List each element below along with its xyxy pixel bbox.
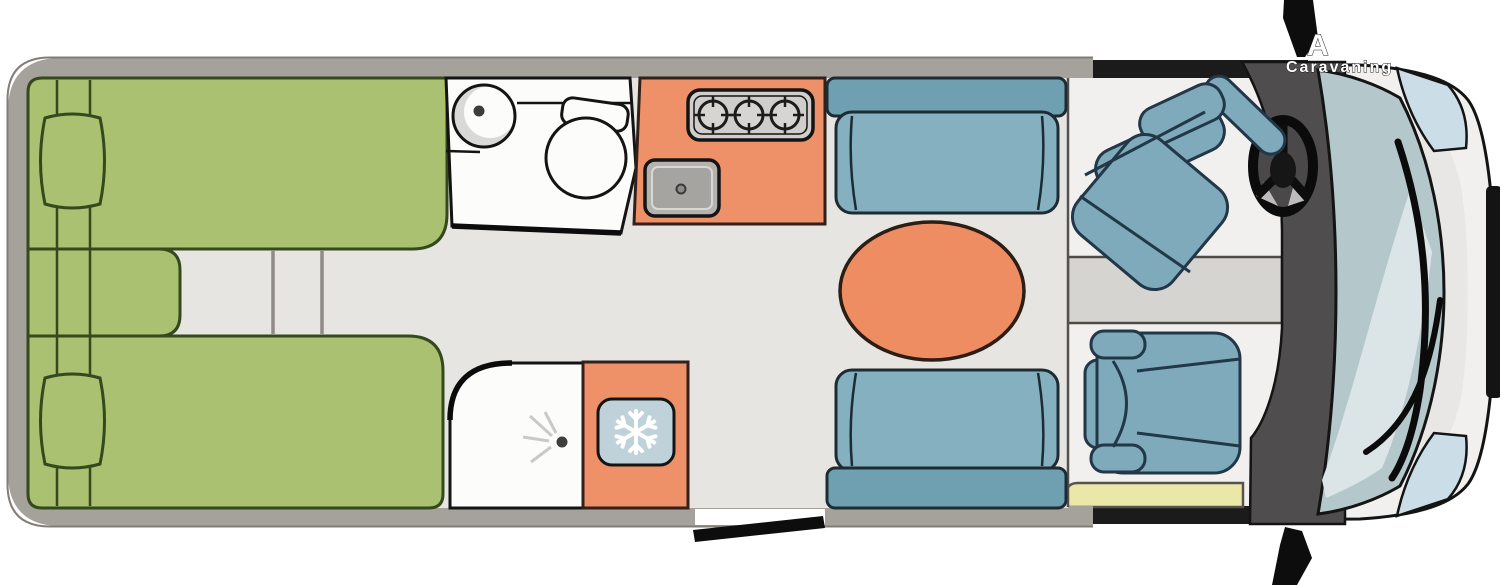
motorhome-floorplan: A Caravaning bbox=[0, 0, 1500, 585]
passenger-armrest-bottom bbox=[1091, 445, 1145, 472]
bathroom bbox=[446, 78, 636, 233]
washbasin-icon bbox=[453, 85, 516, 147]
pillow-top bbox=[41, 114, 105, 208]
bed-head-connector bbox=[28, 249, 180, 336]
floorplan-canvas: A Caravaning bbox=[0, 0, 1500, 585]
cab-step-mat bbox=[1066, 483, 1243, 507]
kitchen-sink-icon bbox=[645, 160, 719, 216]
pillow-bottom bbox=[41, 374, 105, 468]
kitchen bbox=[634, 78, 825, 224]
shower-cubicle bbox=[450, 363, 583, 508]
toilet-bowl bbox=[546, 118, 626, 198]
watermark-line1: A bbox=[1307, 29, 1329, 62]
shower bbox=[450, 363, 583, 508]
watermark-line2: Caravaning bbox=[1286, 59, 1393, 76]
bathroom-counter-edge bbox=[446, 151, 480, 152]
sink-drain bbox=[677, 185, 686, 194]
sofa-bottom-seat bbox=[836, 370, 1058, 471]
sofa-top-backrest bbox=[827, 78, 1066, 116]
basin-faucet bbox=[474, 106, 485, 117]
sofa-bottom-backrest bbox=[827, 468, 1066, 508]
vehicle-front bbox=[1063, 0, 1500, 585]
passenger-armrest-top bbox=[1091, 331, 1145, 358]
front-grille-bar bbox=[1486, 186, 1500, 398]
sofa-top-seat bbox=[836, 112, 1058, 213]
hob-icon bbox=[688, 90, 813, 140]
dinette-table bbox=[840, 222, 1024, 360]
fridge-unit bbox=[583, 362, 688, 508]
passenger-seat bbox=[1085, 331, 1240, 473]
